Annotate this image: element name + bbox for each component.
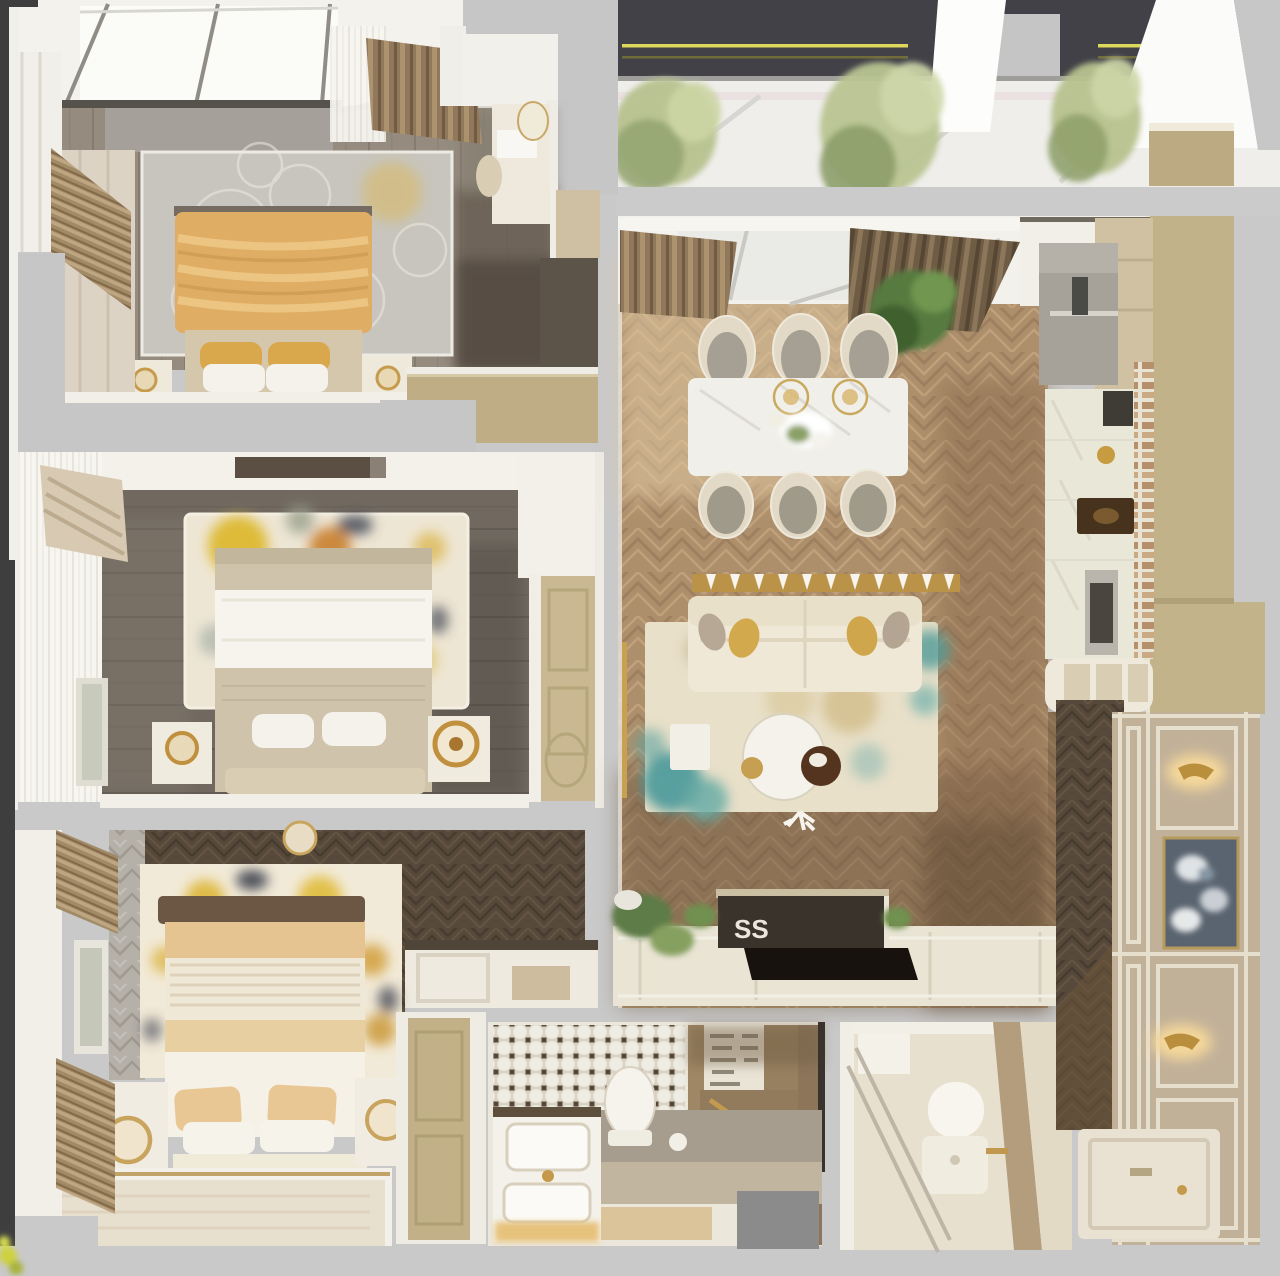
svg-text:SS: SS [734,914,769,944]
